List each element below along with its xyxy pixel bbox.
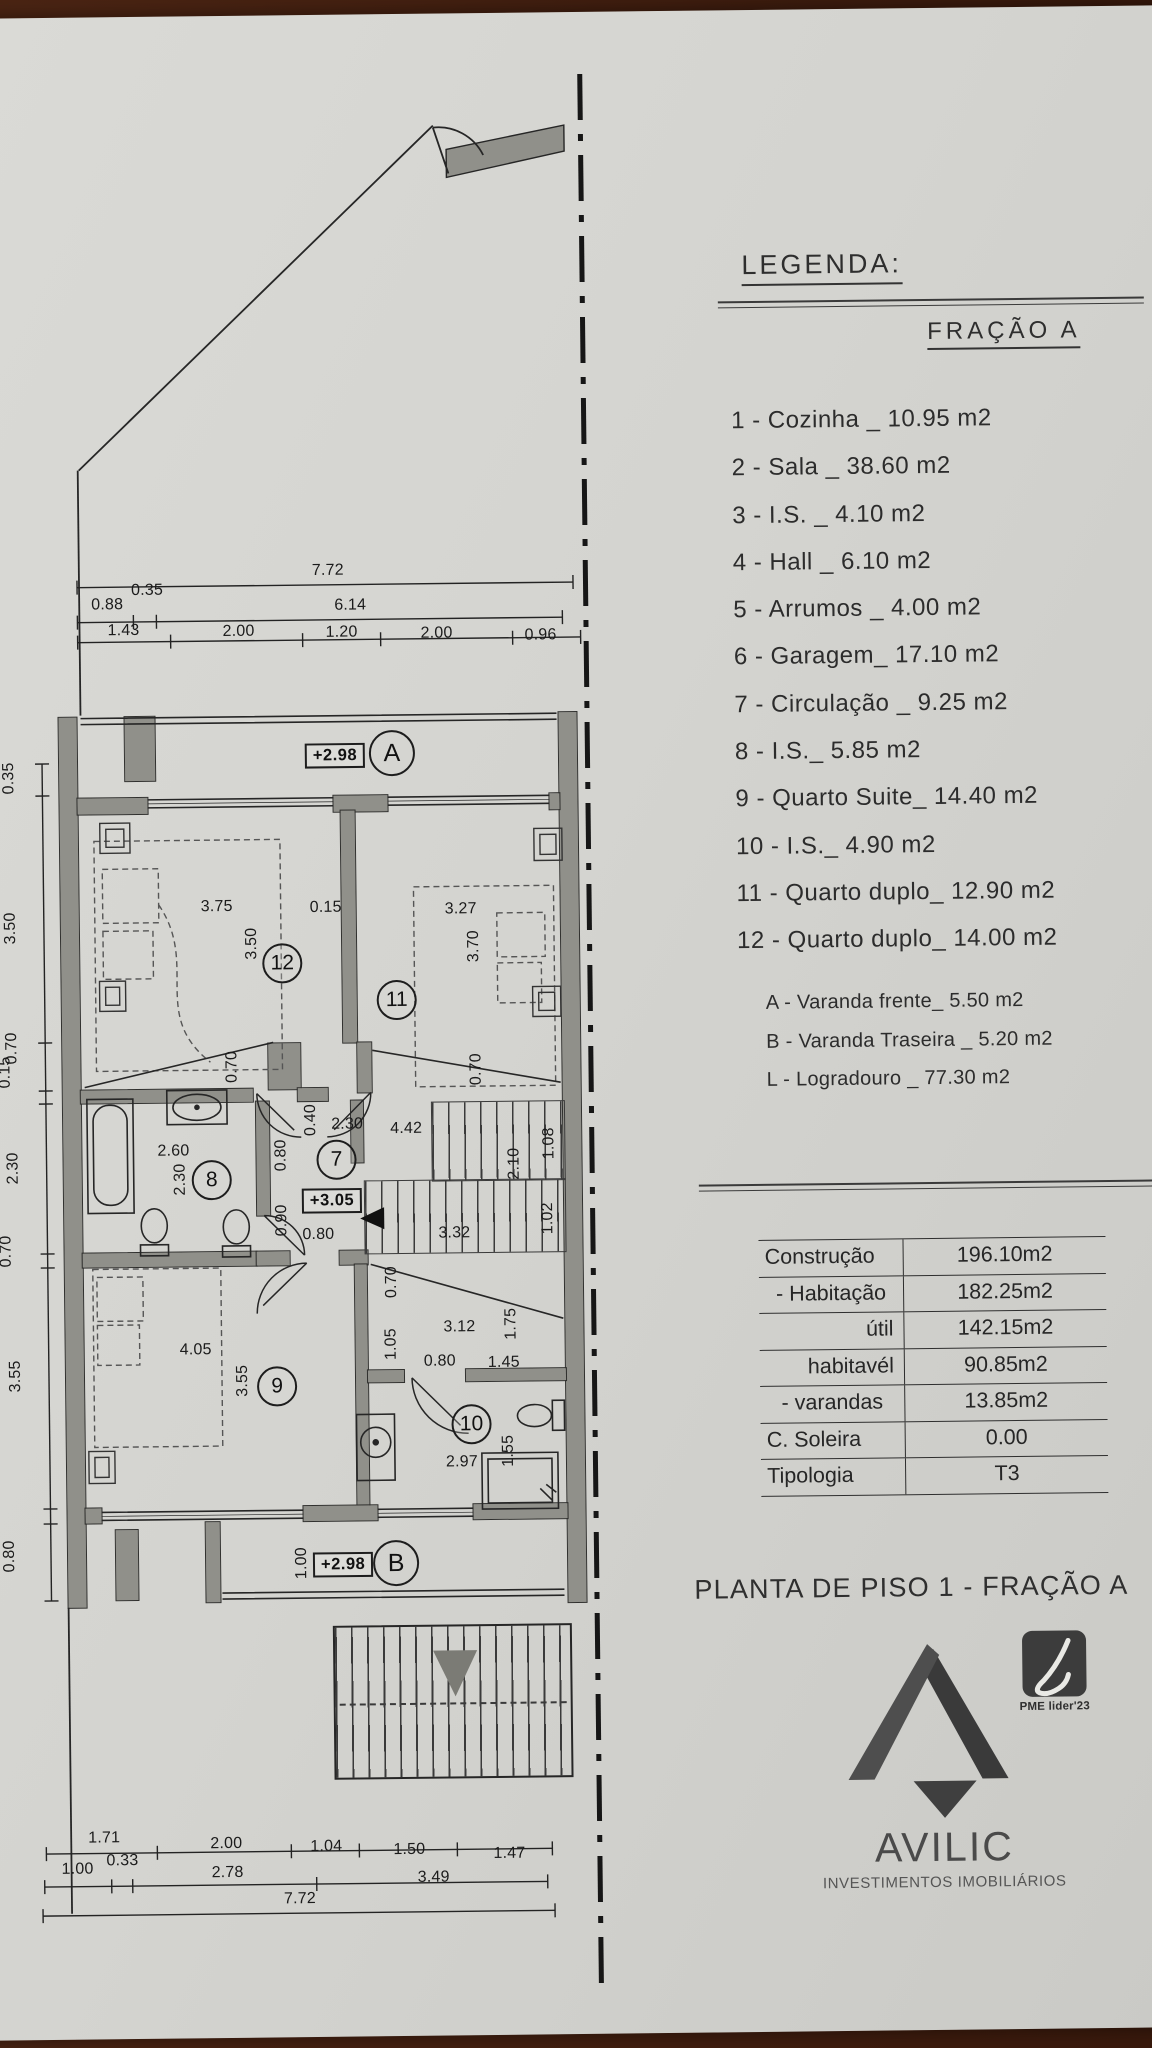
dimension-label: 0.70	[383, 1266, 401, 1298]
table-cell-value: 196.10m2	[903, 1237, 1105, 1275]
brand-subtitle: INVESTIMENTOS IMOBILIÁRIOS	[790, 1872, 1100, 1893]
dimension-label: 0.33	[106, 1852, 138, 1870]
dimension-label: 1.55	[500, 1435, 518, 1467]
dimension-label: 0.80	[272, 1139, 290, 1171]
pme-lider-badge-label: PME lider'23	[1013, 1700, 1097, 1713]
legend-item: 6 - Garagem_ 17.10 m2	[734, 630, 1055, 681]
table-row: - Habitação182.25m2	[759, 1273, 1106, 1313]
sheet-title: PLANTA DE PISO 1 - FRAÇÃO A	[694, 1570, 1128, 1606]
bidet-icon	[223, 1210, 249, 1244]
table-cell-label: - Habitação	[759, 1276, 904, 1313]
dimension-label: 0.80	[1, 1540, 19, 1572]
legend-item: 7 - Circulação _ 9.25 m2	[734, 677, 1055, 728]
dimension-label: 3.55	[234, 1365, 252, 1397]
lot-boundary-lines	[52, 124, 584, 1914]
dimension-label: 1.05	[382, 1328, 400, 1360]
table-cell-label: - varandas	[760, 1385, 905, 1422]
table-cell-value: 90.85m2	[905, 1347, 1107, 1385]
dimension-label: 3.50	[243, 928, 261, 960]
photographed-floor-plan-sheet: 7.720.880.356.141.432.001.202.000.963.75…	[0, 0, 1152, 2048]
railings	[84, 1039, 563, 1323]
shower-icon	[482, 1452, 559, 1509]
table-cell-label: C. Soleira	[761, 1422, 906, 1459]
dimension-label: 3.75	[201, 898, 233, 916]
dimension-label: 2.97	[446, 1453, 478, 1471]
dimension-label: 2.30	[172, 1163, 190, 1195]
table-row: Construção196.10m2	[758, 1236, 1105, 1276]
dimension-label: 1.04	[310, 1838, 342, 1856]
legend-annex-item: A - Varanda frente_ 5.50 m2	[766, 981, 1053, 1023]
pme-lider-badge-icon	[1022, 1630, 1087, 1697]
areas-table: Construção196.10m2- Habitação182.25m2úti…	[758, 1236, 1108, 1496]
table-cell-value: 182.25m2	[904, 1274, 1106, 1312]
dimension-label: 1.47	[493, 1845, 525, 1863]
elevation-box: +3.05	[302, 1188, 363, 1214]
dimension-label: 1.43	[107, 622, 139, 640]
legend-item-list: 1 - Cozinha _ 10.95 m22 - Sala _ 38.60 m…	[731, 394, 1058, 965]
dimension-label: 3.50	[2, 912, 20, 944]
dimension-label: 3.70	[465, 930, 483, 962]
legend-item: 5 - Arrumos _ 4.00 m2	[733, 583, 1054, 634]
fraction-heading: FRAÇÃO A	[927, 316, 1081, 350]
dimension-label: 0.15	[0, 1056, 15, 1088]
dimension-label: 1.71	[88, 1829, 120, 1847]
table-row: útil142.15m2	[759, 1309, 1106, 1349]
room-number-circle: 7	[316, 1140, 356, 1180]
table-cell-label: Tipologia	[761, 1458, 906, 1495]
dimension-label: 7.72	[284, 1890, 316, 1908]
table-cell-value: 142.15m2	[904, 1310, 1106, 1348]
plan-linework	[0, 0, 632, 2048]
dimension-label: 3.49	[418, 1869, 450, 1887]
dimension-label: 1.50	[393, 1841, 425, 1859]
divider-rule-table	[699, 1179, 1152, 1191]
table-cell-label: útil	[759, 1312, 904, 1349]
room-number-circle: 9	[257, 1366, 297, 1406]
table-row: habitavél90.85m2	[760, 1346, 1107, 1386]
legend-item: 12 - Quarto duplo_ 14.00 m2	[737, 914, 1058, 965]
room-number-circle: 8	[192, 1160, 232, 1200]
dimension-label: 0.80	[424, 1352, 456, 1370]
table-cell-label: habitavél	[760, 1349, 905, 1386]
dimension-label: 4.42	[390, 1120, 422, 1138]
legend-annex-item: L - Logradouro _ 77.30 m2	[766, 1058, 1053, 1100]
room-number-circle: 10	[451, 1404, 491, 1444]
legend-item: 9 - Quarto Suite_ 14.40 m2	[735, 772, 1056, 823]
dimension-label: 0.40	[302, 1104, 320, 1136]
legend-item: 2 - Sala _ 38.60 m2	[731, 441, 1052, 492]
legend-annex-list: A - Varanda frente_ 5.50 m2B - Varanda T…	[766, 981, 1054, 1100]
legend-annex-item: B - Varanda Traseira _ 5.20 m2	[766, 1019, 1053, 1061]
legend-item: 3 - I.S. _ 4.10 m2	[732, 488, 1053, 539]
elevation-box: +2.98	[305, 743, 366, 769]
dimension-label: 3.32	[438, 1224, 470, 1242]
dimension-label: 0.96	[525, 626, 557, 644]
legend-item: 11 - Quarto duplo_ 12.90 m2	[736, 867, 1057, 918]
room-number-circle: 12	[262, 943, 302, 983]
dimension-label: 0.90	[273, 1204, 291, 1236]
dimension-label: 0.15	[310, 899, 342, 917]
dimension-label: 6.14	[334, 596, 366, 614]
dimension-label: 1.00	[61, 1861, 93, 1879]
dimension-label: 0.88	[91, 596, 123, 614]
table-row: TipologiaT3	[761, 1455, 1108, 1496]
dimension-label: 0.80	[302, 1226, 334, 1244]
dimension-label: 0.35	[131, 582, 163, 600]
legend-item: 4 - Hall _ 6.10 m2	[733, 535, 1054, 586]
dimension-label: 3.12	[443, 1318, 475, 1336]
legend-item: 10 - I.S._ 4.90 m2	[736, 819, 1057, 870]
dimension-label: 1.20	[325, 623, 357, 641]
table-row: C. Soleira0.00	[761, 1419, 1108, 1459]
dimension-label: 0.70	[223, 1051, 241, 1083]
zone-marker-circle: B	[373, 1540, 420, 1587]
table-cell-label: Construção	[758, 1239, 903, 1276]
dimension-label: 3.27	[445, 900, 477, 918]
dimension-label: 2.00	[210, 1835, 242, 1853]
dimension-chains	[28, 575, 595, 1923]
dimension-label: 3.55	[7, 1360, 25, 1392]
toilet-icon	[141, 1209, 167, 1243]
dimension-label: 4.05	[180, 1341, 212, 1359]
avilic-logo-icon	[845, 1640, 1017, 1824]
paper-sheet: 7.720.880.356.141.432.001.202.000.963.75…	[0, 5, 1152, 2041]
dimension-label: 2.10	[505, 1148, 523, 1180]
legend-heading: LEGENDA:	[741, 248, 902, 286]
table-row: - varandas13.85m2	[760, 1382, 1107, 1422]
dimension-label: 2.60	[157, 1142, 189, 1160]
dimension-label: 1.00	[293, 1547, 311, 1579]
dimension-label: 0.35	[0, 762, 18, 794]
dimension-label: 1.45	[488, 1354, 520, 1372]
divider-rule-top	[718, 297, 1144, 309]
dimension-label: 2.78	[212, 1864, 244, 1882]
dimension-label: 0.70	[0, 1235, 16, 1267]
dimension-label: 1.08	[540, 1127, 558, 1159]
dimension-label: 0.70	[467, 1053, 485, 1085]
legend-item: 8 - I.S._ 5.85 m2	[735, 725, 1056, 776]
elevation-box: +2.98	[313, 1552, 374, 1578]
dimension-label: 2.00	[420, 624, 452, 642]
dimension-label: 1.75	[502, 1308, 520, 1340]
table-cell-value: 0.00	[906, 1420, 1108, 1458]
stairs-up-arrow-icon	[360, 1207, 384, 1229]
dimension-label: 2.30	[4, 1152, 22, 1184]
toilet-10-icon	[552, 1400, 564, 1430]
dimension-label: 2.00	[222, 623, 254, 641]
table-cell-value: 13.85m2	[905, 1383, 1107, 1421]
dimension-label: 1.02	[539, 1202, 557, 1234]
dimension-label: 2.30	[331, 1115, 363, 1133]
brand-name: AVILIC	[809, 1822, 1080, 1872]
room-number-circle: 11	[377, 980, 417, 1020]
legend-item: 1 - Cozinha _ 10.95 m2	[731, 394, 1052, 445]
floor-plan: 7.720.880.356.141.432.001.202.000.963.75…	[0, 0, 632, 2048]
table-cell-value: T3	[906, 1456, 1108, 1494]
dimension-label: 7.72	[312, 562, 344, 580]
